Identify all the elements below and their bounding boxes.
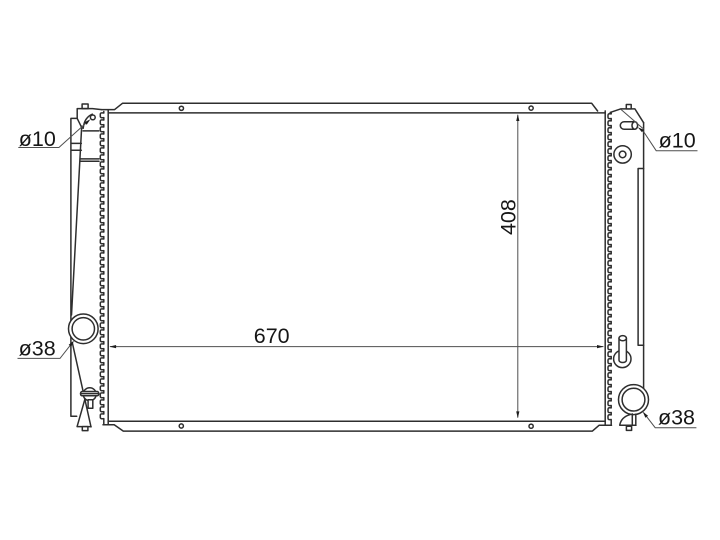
svg-text:670: 670 [254, 324, 290, 348]
svg-text:ø10: ø10 [659, 128, 696, 152]
svg-text:ø38: ø38 [658, 406, 695, 430]
svg-text:ø38: ø38 [19, 336, 56, 360]
svg-text:408: 408 [496, 199, 520, 235]
